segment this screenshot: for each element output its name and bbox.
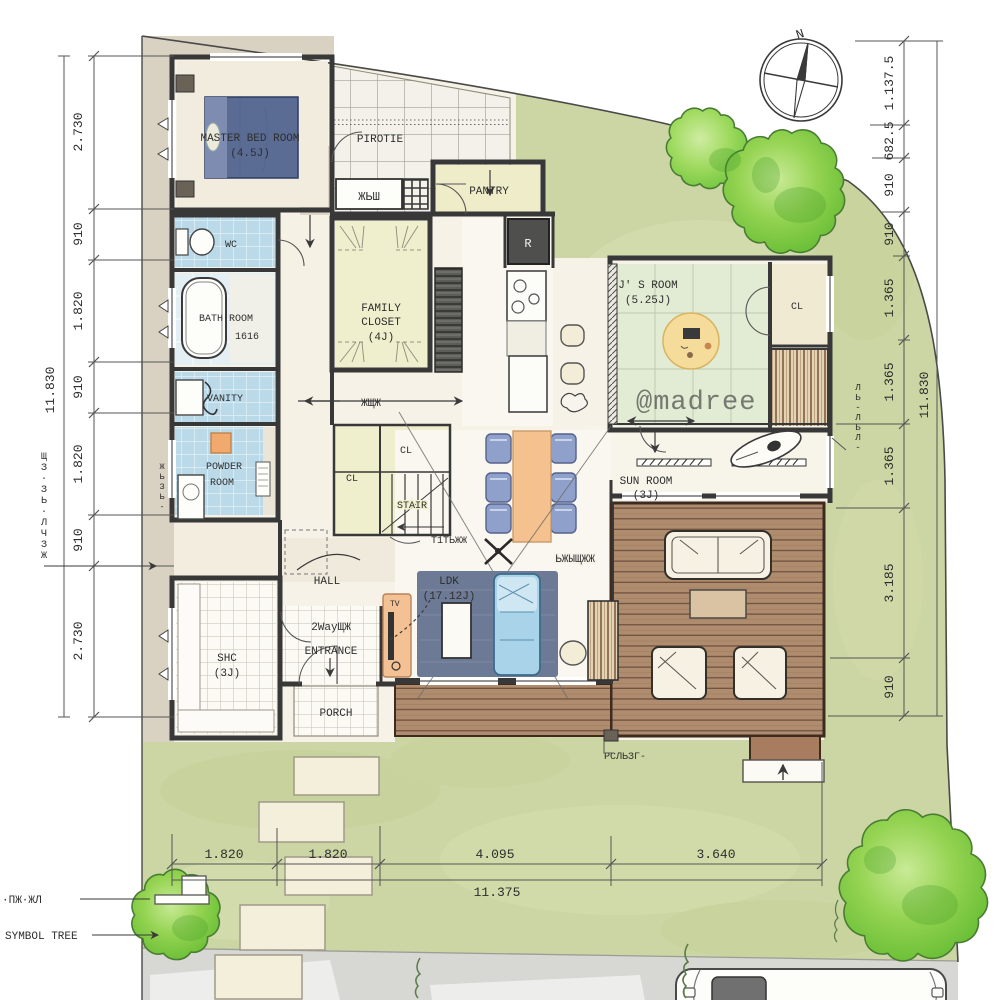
svg-text:4.095: 4.095: [475, 847, 514, 862]
svg-text:WC: WC: [225, 240, 237, 251]
svg-text:910: 910: [882, 675, 897, 698]
svg-text:1.137.5: 1.137.5: [882, 56, 897, 111]
svg-text:11.830: 11.830: [43, 367, 58, 414]
svg-text:(4J): (4J): [368, 332, 394, 344]
svg-text:BATH ROOM: BATH ROOM: [199, 314, 253, 325]
svg-text:682.5: 682.5: [882, 121, 897, 160]
svg-text:VANITY: VANITY: [207, 394, 243, 405]
svg-text:3.185: 3.185: [882, 563, 897, 602]
svg-text:@madree: @madree: [636, 388, 756, 418]
svg-text:ЛЬ-ЛЬЛ-: ЛЬ-ЛЬЛ-: [853, 383, 863, 453]
svg-text:POWDER: POWDER: [206, 462, 242, 473]
svg-text:11.830: 11.830: [917, 372, 932, 419]
svg-text:SYMBOL TREE: SYMBOL TREE: [5, 931, 78, 943]
svg-text:ЬЖЫЩЖЖ: ЬЖЫЩЖЖ: [555, 554, 595, 566]
svg-text:LDK: LDK: [439, 576, 459, 588]
svg-text:1.820: 1.820: [204, 847, 243, 862]
svg-text:ЩЗ·ЗЬ·ЛЧЗЖ: ЩЗ·ЗЬ·ЛЧЗЖ: [39, 452, 50, 562]
svg-text:SHC: SHC: [217, 653, 237, 665]
svg-text:CL: CL: [400, 446, 412, 457]
svg-text:1.820: 1.820: [308, 847, 347, 862]
svg-text:PORCH: PORCH: [319, 708, 352, 720]
svg-text:1.365: 1.365: [882, 362, 897, 401]
svg-text:PIROTIE: PIROTIE: [357, 134, 404, 146]
svg-text:2WayЩЖ: 2WayЩЖ: [311, 622, 351, 634]
svg-text:(17.12J): (17.12J): [423, 591, 476, 603]
svg-text:·ПЖ·ЖЛ: ·ПЖ·ЖЛ: [2, 895, 42, 907]
svg-text:910: 910: [882, 173, 897, 196]
svg-text:1.820: 1.820: [71, 444, 86, 483]
svg-text:PCЛЬЗГ-: PCЛЬЗГ-: [604, 752, 646, 763]
svg-text:J' S ROOM: J' S ROOM: [618, 280, 677, 292]
svg-text:910: 910: [71, 222, 86, 245]
svg-text:CL: CL: [346, 474, 358, 485]
svg-text:ROOM: ROOM: [210, 478, 234, 489]
svg-text:CLOSET: CLOSET: [361, 317, 401, 329]
svg-text:3.640: 3.640: [696, 847, 735, 862]
svg-text:HALL: HALL: [314, 576, 340, 588]
svg-text:CL: CL: [791, 302, 803, 313]
svg-text:2.730: 2.730: [71, 112, 86, 151]
svg-text:1616: 1616: [235, 332, 259, 343]
svg-text:PANTRY: PANTRY: [469, 186, 509, 198]
svg-text:1.365: 1.365: [882, 278, 897, 317]
svg-text:STAIR: STAIR: [397, 501, 427, 512]
svg-text:SUN ROOM: SUN ROOM: [620, 476, 673, 488]
svg-text:Т1ТЬЖЖ: Т1ТЬЖЖ: [431, 536, 467, 547]
svg-text:MASTER BED ROOM: MASTER BED ROOM: [200, 133, 299, 145]
svg-text:11.375: 11.375: [474, 885, 521, 900]
svg-text:1.365: 1.365: [882, 446, 897, 485]
svg-text:(3J): (3J): [633, 490, 659, 502]
svg-text:ЖЬЗЬ-: ЖЬЗЬ-: [157, 462, 167, 512]
svg-text:ENTRANCE: ENTRANCE: [305, 646, 358, 658]
svg-text:ЖЩЖ: ЖЩЖ: [361, 398, 381, 410]
svg-text:R: R: [524, 237, 531, 251]
svg-text:(5.25J): (5.25J): [625, 295, 671, 307]
svg-text:2.730: 2.730: [71, 621, 86, 660]
svg-text:TV: TV: [390, 600, 400, 609]
svg-text:1.820: 1.820: [71, 291, 86, 330]
svg-text:(4.5J): (4.5J): [230, 148, 270, 160]
svg-text:(3J): (3J): [214, 668, 240, 680]
svg-text:910: 910: [882, 222, 897, 245]
svg-text:910: 910: [71, 528, 86, 551]
svg-text:ЖЬШ: ЖЬШ: [358, 190, 380, 204]
svg-text:910: 910: [71, 375, 86, 398]
svg-text:FAMILY: FAMILY: [361, 303, 401, 315]
